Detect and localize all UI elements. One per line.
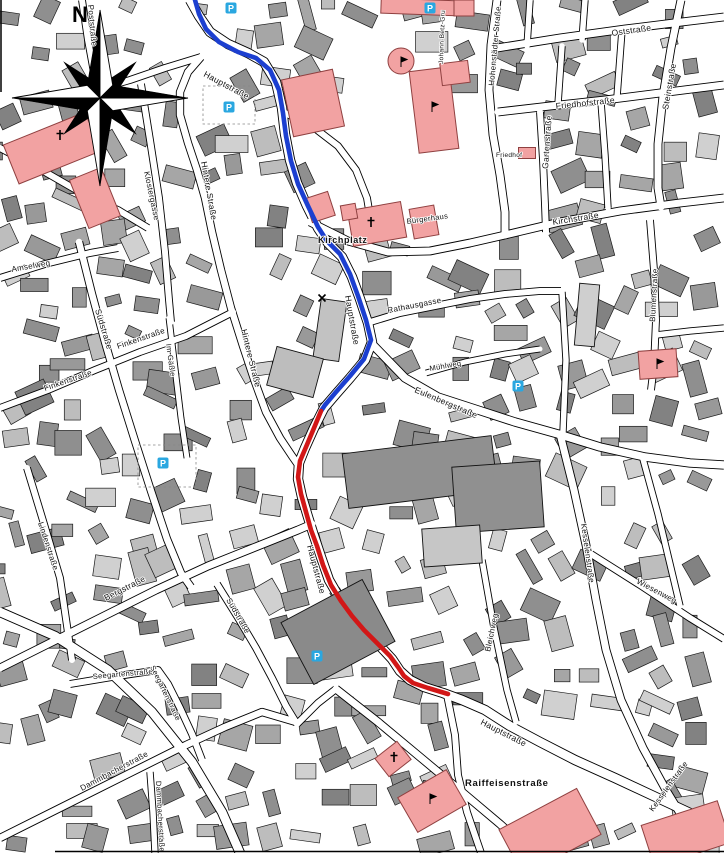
building [321, 0, 334, 9]
building [686, 722, 707, 744]
building [64, 400, 80, 420]
parking-icon-letter: P [427, 3, 433, 13]
compass-north-label: N [72, 2, 88, 27]
building [601, 487, 615, 506]
building [268, 2, 287, 18]
building [664, 142, 686, 161]
street-road [582, 0, 585, 40]
building [254, 22, 284, 48]
major-building [422, 525, 483, 567]
building [494, 325, 527, 340]
street-road [527, 0, 530, 46]
landmark-building [381, 0, 459, 16]
building [192, 694, 221, 709]
building [2, 428, 29, 448]
building [696, 133, 720, 160]
city-plan-map: NHauptstraßeOststraßeFriedhofstraßeGarte… [0, 0, 724, 853]
street-label: Kirchplatz [318, 235, 368, 245]
building [267, 205, 288, 228]
building [322, 789, 349, 805]
building [52, 524, 73, 536]
building [72, 288, 86, 307]
building [690, 282, 718, 310]
parking-icon-letter: P [160, 458, 166, 468]
building [230, 400, 251, 420]
building [86, 488, 116, 506]
building [0, 564, 5, 574]
building [192, 664, 217, 685]
landmark-building [282, 69, 345, 137]
building [215, 136, 248, 153]
building [260, 494, 283, 517]
building [97, 257, 125, 277]
building [613, 395, 634, 414]
building [224, 153, 242, 175]
building [619, 426, 647, 442]
building [50, 359, 85, 370]
building [421, 703, 438, 723]
street-label: Friedhof [496, 152, 522, 159]
landmark-building [340, 203, 357, 220]
landmark-building [454, 0, 474, 16]
building [25, 203, 47, 224]
major-building [452, 461, 544, 533]
building [40, 304, 59, 319]
building [683, 58, 699, 75]
parking-icon-letter: P [515, 381, 521, 391]
building [363, 271, 391, 295]
map-canvas: NHauptstraßeOststraßeFriedhofstraßeGarte… [0, 0, 724, 853]
building [138, 620, 159, 635]
street-label: Raiffeisenstraße [465, 778, 549, 789]
building [554, 669, 570, 681]
building [541, 690, 577, 720]
building [579, 669, 599, 682]
building [516, 63, 531, 74]
building [134, 296, 160, 314]
building [32, 47, 50, 61]
building [256, 725, 281, 744]
building [93, 555, 122, 580]
building [255, 228, 282, 247]
building [362, 668, 387, 677]
building [390, 507, 413, 519]
building [100, 457, 120, 474]
building [296, 764, 316, 779]
building [57, 33, 85, 49]
parking-icon-letter: P [314, 651, 320, 661]
building [55, 430, 82, 455]
parking-icon-letter: P [228, 3, 234, 13]
building [350, 785, 376, 806]
building [21, 278, 49, 291]
parking-icon-letter: P [226, 102, 232, 112]
